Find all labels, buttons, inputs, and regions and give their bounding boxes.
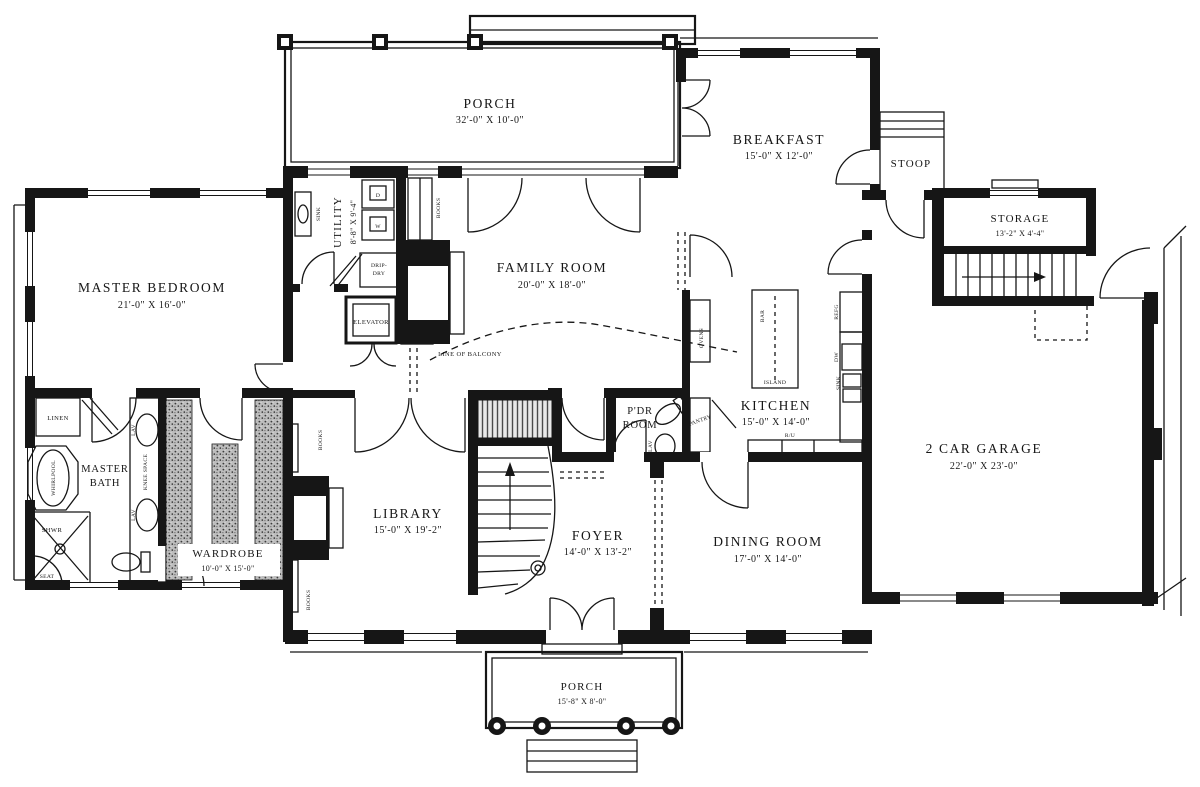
window [698,48,740,58]
breakfast: BREAKFAST 15'-0" X 12'-0" [676,48,880,194]
window [690,630,746,644]
room-dims-porch-top: 32'-0" X 10'-0" [456,115,524,126]
fixture-label-lav-1: LAV [131,424,137,436]
powder-room: P'DR ROOM LAV PANTRY [606,388,736,462]
fixture-label-knee-space: KNEE SPACE [143,454,149,490]
window [182,580,240,590]
room-label-master-bath-1: MASTER [81,464,128,475]
stoop: STOOP [880,112,944,194]
window [900,592,956,604]
fixture-label-shwr: SHWR [42,527,63,534]
room-dims-foyer: 14'-0" X 13'-2" [564,547,632,558]
fixture-label-dw: DW [834,352,840,362]
fixture-label-island: ISLAND [764,380,786,386]
fixture-label-refg: REFG [834,304,840,320]
fixture-label-books-family: BOOKS [436,198,442,218]
kitchen-island: BAR ISLAND [752,290,798,388]
room-label-wardrobe: WARDROBE [192,548,263,560]
room-label-dining-room: DINING ROOM [713,534,822,549]
storage: STORAGE 13'-2" X 4'-4" [932,180,1096,256]
room-dims-garage: 22'-0" X 23'-0" [950,461,1018,472]
family-fireplace [396,240,464,344]
room-label-foyer: FOYER [572,528,624,543]
fixture-label-line-of-balcony: LINE OF BALCONY [438,351,502,358]
toilet-master-bath [112,552,150,572]
fixture-label-utility-sink: SINK [316,207,322,221]
garage-stairs [938,254,1094,340]
room-dims-dining-room: 17'-0" X 14'-0" [734,554,802,565]
fixture-label-books-lib-2: BOOKS [306,590,312,610]
room-dims-porch-bottom: 15'-8" X 8'-0" [558,697,607,706]
fixture-label-books-lib-1: BOOKS [318,430,324,450]
whirlpool-tub: WHIRLPOOL [28,446,78,510]
room-label-porch-bottom: PORCH [561,681,604,693]
fixture-label-lav-3: LAV [648,440,654,452]
fixture-label-washer: W [375,224,381,230]
window [1004,592,1060,604]
room-label-stoop: STOOP [891,158,932,170]
family-bookshelf: BOOKS [408,178,442,240]
fixture-label-drip-dry-2: DRY [373,271,385,277]
fixture-label-whirlpool: WHIRLPOOL [51,460,57,496]
room-dims-library: 15'-0" X 19'-2" [374,525,442,536]
room-dims-breakfast: 15'-0" X 12'-0" [745,151,813,162]
floor-plan-drawing: PORCH 32'-0" X 10'-0" MASTER BEDROOM 21'… [0,0,1200,787]
porch-columns [488,717,680,735]
ovens-cabinet: OVENS [690,300,710,362]
fixture-label-elevator: ELEVATOR [353,319,389,326]
room-dims-kitchen: 15'-0" X 14'-0" [742,417,810,428]
window [308,166,350,178]
mud-hall [862,190,944,306]
porch-bottom: PORCH 15'-8" X 8'-0" [486,652,682,772]
utility-sink: SINK [295,192,322,236]
window [25,448,35,500]
fixture-label-ovens: OVENS [699,328,705,348]
room-label-breakfast: BREAKFAST [733,132,825,147]
fixture-label-seat: SEAT [40,574,55,580]
room-label-kitchen: KITCHEN [741,398,811,413]
fixture-label-lav-2: LAV [131,509,137,521]
window [404,630,456,644]
fixture-label-range-unit: R/U [785,433,795,439]
room-label-family-room: FAMILY ROOM [497,260,607,275]
dining-room: DINING ROOM 17'-0" X 14'-0" [652,534,872,644]
kitchen-counter-east: REFG DW SINK [834,292,864,442]
window [88,188,150,198]
window [25,232,35,286]
drip-dry-closet: DRIP- DRY [330,253,398,288]
room-dims-master-bedroom: 21'-0" X 16'-0" [118,300,186,311]
linen-closet: LINEN [36,398,118,436]
room-label-porch-top: PORCH [463,96,516,111]
fixture-label-kitchen-sink: SINK [836,376,842,390]
elevator: ELEVATOR [346,297,396,366]
washer: W [362,210,394,240]
room-label-master-bedroom: MASTER BEDROOM [78,280,226,295]
library-bookshelf-north: BOOKS [286,424,324,472]
room-label-utility: UTILITY [332,196,344,248]
center-south-wall [552,420,872,508]
fixture-label-drip-dry-1: DRIP- [371,263,387,269]
room-dims-wardrobe: 10'-0" X 15'-0" [201,564,254,573]
porch-steps [527,740,637,772]
window [25,322,35,376]
room-label-master-bath-2: BATH [90,478,121,489]
room-label-library: LIBRARY [373,506,443,521]
fixture-label-bar: BAR [760,310,766,322]
library: BOOKS BOOKS LIBRARY 15'-0" X 19'-2" [283,424,468,644]
fixture-label-pantry: PANTRY [688,414,712,428]
room-label-storage: STORAGE [991,213,1050,225]
window [408,166,438,178]
pantry: PANTRY [688,398,736,452]
window [308,630,364,644]
fixture-label-dryer: D [376,193,380,199]
room-label-pdr-1: P'DR [627,406,653,417]
porch-top: PORCH 32'-0" X 10'-0" [277,16,695,168]
dryer: D [362,180,394,208]
window [990,188,1038,198]
window [786,630,842,644]
coat-closet [478,400,552,438]
room-dims-storage: 13'-2" X 4'-4" [996,229,1045,238]
room-label-garage: 2 CAR GARAGE [926,441,1043,456]
shower: SHWR SEAT [33,512,90,582]
line-of-balcony: LINE OF BALCONY [430,322,737,360]
kitchen-counter-south: R/U [748,433,862,454]
french-doors-porch [462,166,644,232]
room-dims-family-room: 20'-0" X 18'-0" [518,280,586,291]
curved-stair [478,446,555,594]
wardrobe: WARDROBE 10'-0" X 15'-0" [166,398,293,642]
room-dims-utility: 8'-8" X 9'-4" [349,200,358,244]
library-fireplace [283,476,343,560]
window [790,48,856,58]
fixture-label-linen-bath: LINEN [47,415,69,422]
window [70,580,118,590]
window [200,188,266,198]
floor-plan: PORCH 32'-0" X 10'-0" MASTER BEDROOM 21'… [0,0,1200,787]
stair-up-arrow [505,462,515,476]
